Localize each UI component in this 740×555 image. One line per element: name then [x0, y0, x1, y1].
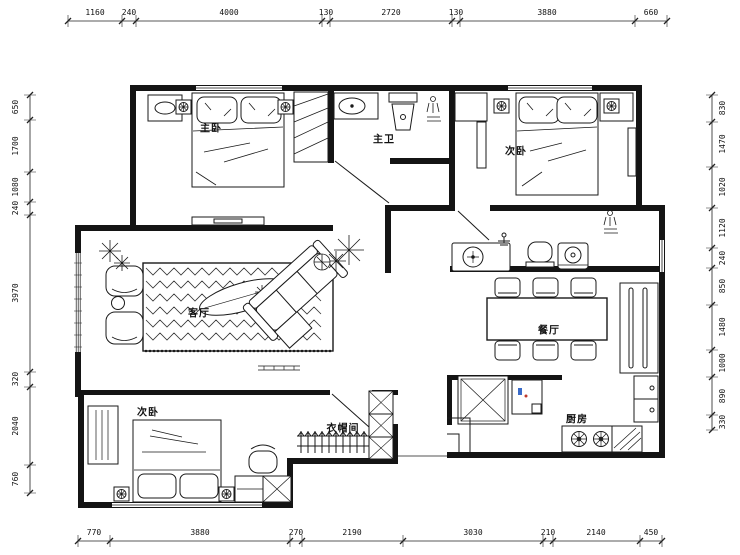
dim-top-4: 130 — [319, 8, 333, 18]
stove — [562, 426, 642, 452]
pillow-icon — [557, 97, 597, 123]
pillow-icon — [241, 97, 281, 123]
radiator-icon — [494, 99, 509, 113]
floor-plan-drawing — [0, 0, 740, 555]
dim-left-6: 320 — [11, 372, 21, 386]
dim-right-7: 1480 — [718, 317, 728, 336]
tall-cabinet — [620, 283, 658, 373]
laundry-chair — [526, 242, 554, 267]
dim-right-2: 1470 — [718, 134, 728, 153]
dim-right-3: 1020 — [718, 177, 728, 196]
vanity — [334, 93, 378, 119]
master-bedroom-furniture — [148, 92, 328, 225]
dim-bottom-8: 450 — [644, 528, 658, 538]
cabinet — [477, 122, 486, 168]
water-heater-icon — [604, 211, 618, 234]
dim-bottom-5: 3030 — [463, 528, 482, 538]
kitchen-fixtures — [447, 376, 658, 452]
radiator-icon — [176, 100, 191, 114]
window-unit — [88, 406, 118, 464]
chair — [533, 278, 558, 297]
bedroom2-furniture — [455, 93, 636, 233]
sofa — [242, 239, 359, 353]
dim-top-1: 1160 — [85, 8, 104, 18]
side-table — [112, 297, 125, 310]
burner-icon — [572, 432, 587, 447]
tv-icon — [214, 219, 242, 223]
dim-right-10: 330 — [718, 415, 728, 429]
dim-top-5: 2720 — [381, 8, 400, 18]
living-room-furniture — [99, 235, 364, 370]
dim-top-6: 130 — [449, 8, 463, 18]
dim-right-4: 1120 — [718, 218, 728, 237]
dim-top-3: 4000 — [219, 8, 238, 18]
nightstand — [455, 93, 487, 121]
dim-bottom-7: 2140 — [586, 528, 605, 538]
dim-left-5: 3970 — [11, 283, 21, 302]
radiator-icon — [219, 487, 234, 501]
bedroom3-furniture — [88, 406, 291, 502]
dim-left-1: 650 — [11, 100, 21, 114]
washing-machine — [558, 243, 588, 269]
shower-icon — [427, 97, 441, 122]
dim-bottom-6: 210 — [541, 528, 555, 538]
toilet-tank — [389, 93, 417, 102]
pillow-icon — [519, 97, 559, 123]
room-label-kitchen: 厨房 — [566, 411, 588, 426]
dim-right-6: 850 — [718, 279, 728, 293]
dim-left-4: 240 — [11, 201, 21, 215]
bedroom2-door — [458, 211, 489, 240]
toilet-icon — [392, 104, 414, 130]
dining-furniture — [487, 278, 658, 373]
floor-plan-canvas: 1160 240 4000 130 2720 130 3880 660 770 … — [0, 0, 740, 555]
dim-left-7: 2040 — [11, 416, 21, 435]
hanger-icon — [312, 431, 318, 453]
room-label-bedroom3: 次卧 — [137, 404, 159, 419]
dim-bottom-3: 270 — [289, 528, 303, 538]
chair — [571, 341, 596, 360]
room-label-bedroom2: 次卧 — [505, 143, 527, 158]
hanger-icon — [319, 431, 325, 453]
dim-right-1: 830 — [718, 101, 728, 115]
radiator-icon — [114, 487, 129, 501]
dim-top-8: 660 — [644, 8, 658, 18]
dim-bottom-1: 770 — [87, 528, 101, 538]
room-label-cloakroom: 衣帽间 — [327, 420, 360, 435]
plant-icon — [326, 235, 364, 271]
pillow-icon — [138, 474, 176, 498]
chair — [571, 278, 596, 297]
dim-right-8: 1000 — [718, 353, 728, 372]
vent-lines — [258, 366, 300, 370]
dim-top-2: 240 — [122, 8, 136, 18]
burner-icon — [594, 432, 609, 447]
room-label-living: 客厅 — [188, 305, 210, 320]
room-label-master-bath: 主卫 — [373, 131, 395, 146]
fridge — [458, 376, 508, 424]
ceiling-light-icon — [314, 254, 330, 270]
bath-door — [335, 161, 389, 203]
counter — [452, 243, 510, 271]
armchairs — [106, 266, 143, 344]
dim-left-8: 760 — [11, 472, 21, 486]
desk-chair — [249, 445, 277, 473]
hanger-icon — [305, 431, 311, 453]
small-cabinet — [512, 380, 542, 414]
dim-top-7: 3880 — [537, 8, 556, 18]
dim-bottom-2: 3880 — [190, 528, 209, 538]
cabinet — [628, 128, 636, 176]
hanger-icon — [361, 431, 367, 453]
dim-left-3: 1080 — [11, 177, 21, 196]
dim-right-5: 240 — [718, 251, 728, 265]
chair — [495, 278, 520, 297]
master-bath-fixtures — [334, 93, 441, 130]
radiator-icon — [604, 99, 619, 113]
shelf-column — [369, 391, 393, 459]
pillow-icon — [180, 474, 218, 498]
laundry-nook — [452, 233, 588, 271]
chair — [495, 341, 520, 360]
hanger-icon — [298, 431, 304, 453]
double-sink — [634, 376, 658, 422]
room-label-master-bedroom: 主卧 — [200, 120, 222, 135]
desk — [235, 476, 291, 502]
room-label-dining: 餐厅 — [538, 322, 560, 337]
dim-bottom-4: 2190 — [342, 528, 361, 538]
dim-right-9: 890 — [718, 389, 728, 403]
dim-left-2: 1700 — [11, 136, 21, 155]
radiator-icon — [278, 100, 293, 114]
chair — [533, 341, 558, 360]
